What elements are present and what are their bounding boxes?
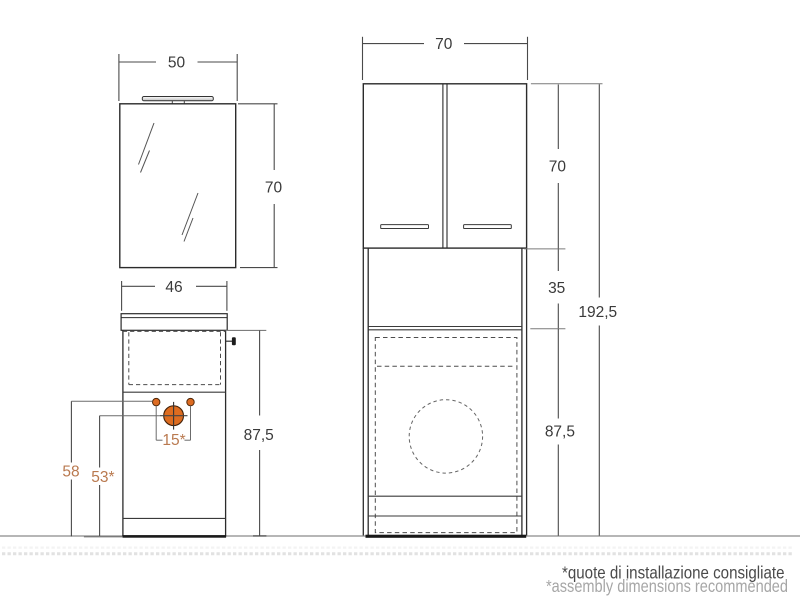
svg-text:53*: 53* (91, 469, 114, 486)
svg-text:87,5: 87,5 (244, 427, 274, 444)
svg-text:50: 50 (168, 55, 186, 72)
svg-text:15*: 15* (162, 432, 185, 449)
svg-text:70: 70 (549, 159, 567, 176)
svg-text:70: 70 (265, 179, 283, 196)
svg-text:35: 35 (548, 280, 565, 297)
svg-text:58: 58 (62, 463, 79, 480)
svg-text:*assembly dimensions recommend: *assembly dimensions recommended (546, 576, 788, 596)
svg-text:46: 46 (165, 279, 182, 296)
svg-text:192,5: 192,5 (578, 304, 617, 321)
svg-text:70: 70 (435, 36, 453, 53)
svg-text:87,5: 87,5 (545, 424, 575, 441)
